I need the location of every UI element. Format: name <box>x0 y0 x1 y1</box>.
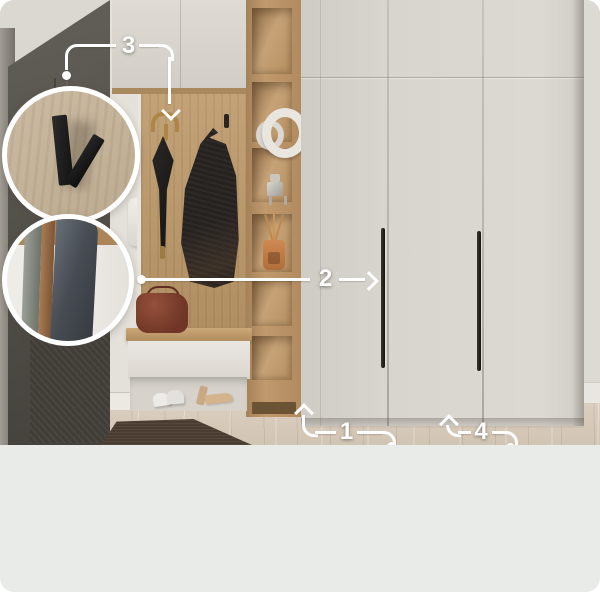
decor-robot-figurine <box>267 182 283 196</box>
right-wall <box>584 0 600 402</box>
wardrobe <box>301 0 584 426</box>
wardrobe-side-shadow <box>572 0 584 426</box>
sneakers <box>167 389 185 404</box>
coat-hook <box>224 114 229 128</box>
callout-3-line <box>168 57 171 104</box>
inset-edge-closeup <box>2 214 134 346</box>
wardrobe-seam <box>301 77 584 78</box>
wardrobe-seam <box>482 0 484 426</box>
inset-hook-closeup <box>2 86 140 224</box>
callout-3-line <box>65 57 68 70</box>
shelf-column-plinth-gap <box>252 402 296 414</box>
callout-3-dot-icon <box>62 71 71 80</box>
diffuser-label <box>268 252 280 264</box>
callout-2-line <box>145 278 310 281</box>
callout-number-2: 2 <box>315 266 335 292</box>
decor-robot-figurine <box>269 196 287 205</box>
wardrobe-seam <box>320 0 321 426</box>
callout-number-1: 1 <box>337 419 355 445</box>
wardrobe-seam <box>387 0 389 426</box>
callout-4-line <box>492 431 504 434</box>
wardrobe-handle <box>381 228 385 368</box>
decor-robot-figurine <box>270 174 280 182</box>
callout-1-line <box>357 431 382 434</box>
callout-number-4: 4 <box>471 419 490 445</box>
shelf-opening <box>252 8 292 74</box>
callout-number-3: 3 <box>117 33 139 59</box>
door-lower-panel <box>30 332 112 443</box>
panel-edge <box>49 216 98 346</box>
umbrella-tip <box>160 246 165 259</box>
product-infographic: 3 2 1 4 <box>0 0 600 592</box>
callout-3-line <box>79 44 116 47</box>
legend-band: 1.Регулируемые опоры 2 ,3.Матовые крючки… <box>0 445 600 592</box>
bench-drawer <box>128 341 250 379</box>
shelf-opening <box>252 336 292 380</box>
cabinet-seam <box>180 0 181 88</box>
shelf-opening <box>252 278 292 326</box>
callout-4-line <box>458 431 471 434</box>
umbrella-neck <box>164 124 168 140</box>
leather-bag <box>136 293 188 333</box>
callout-3-line <box>139 44 159 47</box>
wardrobe-handle <box>477 231 481 371</box>
right-baseboard <box>584 382 600 403</box>
callout-1-line <box>315 431 336 434</box>
